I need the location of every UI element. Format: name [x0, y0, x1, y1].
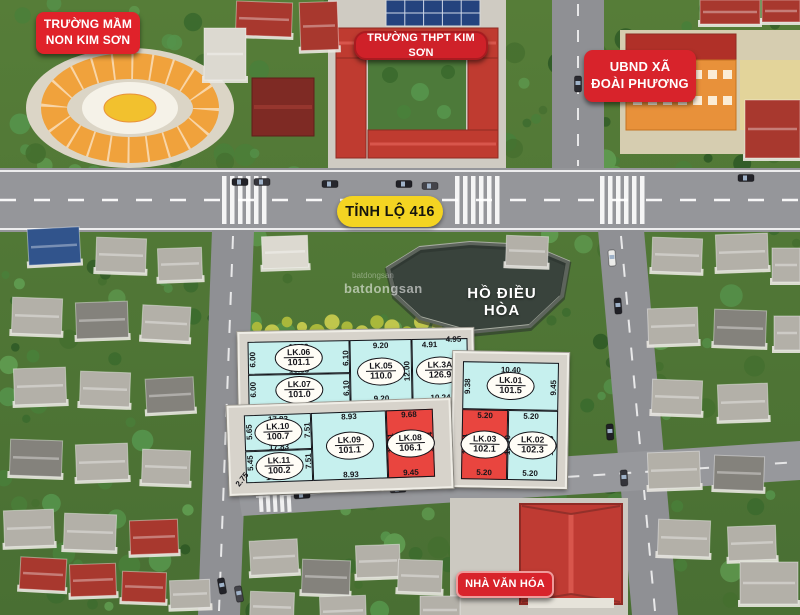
dimension-label: 7.51 — [303, 422, 313, 438]
ubnd-label-line2: ĐOÀI PHƯƠNG — [584, 76, 696, 93]
kindergarten-label-line1: TRƯỜNG MẦM — [36, 17, 140, 33]
plot-area: 100.2 — [268, 466, 291, 476]
plot-LK.07: LK.07101.0 — [248, 373, 351, 406]
ubnd-label: UBND XÃ ĐOÀI PHƯƠNG — [584, 50, 696, 102]
plot-area: 101.1 — [338, 446, 361, 456]
plot-area: 102.3 — [521, 445, 544, 455]
dimension-label: 8.93 — [341, 412, 357, 422]
dimension-label: 7.51 — [304, 453, 314, 469]
plot-area: 106.1 — [399, 443, 422, 453]
plot-area: 102.1 — [473, 445, 496, 455]
plot-area: 100.7 — [267, 432, 290, 442]
dimension-label: 9.68 — [401, 410, 417, 420]
kindergarten-label-line2: NON KIM SƠN — [36, 33, 140, 49]
plot-area: 101.1 — [288, 358, 311, 368]
dimension-label: 5.20 — [477, 411, 493, 420]
land-block-B: LK.01101.5LK.03102.1LK.02102.310.409.389… — [451, 351, 569, 489]
lake-label: HỒ ĐIỀU HÒA — [450, 285, 554, 319]
culture-house-label: NHÀ VĂN HÓA — [456, 571, 554, 598]
dimension-label: 6.00 — [248, 352, 257, 368]
culture-house-label-text: NHÀ VĂN HÓA — [458, 577, 552, 591]
road-label-text: TỈNH LỘ 416 — [345, 204, 435, 220]
kindergarten-label: TRƯỜNG MẦM NON KIM SƠN — [36, 12, 140, 54]
school-label: TRƯỜNG THPT KIM SƠN — [354, 31, 488, 60]
plot-LK.10: LK.10100.7 — [244, 413, 312, 451]
plot-badge-LK.11: LK.11100.2 — [255, 451, 304, 481]
plot-area: 101.5 — [499, 386, 522, 396]
dimension-label: 4.91 — [422, 340, 438, 349]
dimension-label: 6.10 — [341, 350, 350, 366]
plot-area: 110.0 — [370, 372, 392, 382]
plot-badge-LK.05: LK.05110.0 — [357, 357, 405, 386]
dimension-label: 5.20 — [476, 468, 492, 477]
dimension-label: 9.45 — [549, 380, 558, 396]
school-label-text: TRƯỜNG THPT KIM SƠN — [356, 31, 486, 60]
plot-badge-LK.06: LK.06101.1 — [275, 343, 323, 372]
dimension-label: 9.45 — [403, 468, 419, 478]
dimension-label: 8.93 — [343, 470, 359, 480]
dimension-label: 4.95 — [446, 335, 462, 344]
ubnd-label-line1: UBND XÃ — [584, 59, 696, 76]
dimension-label: 5.65 — [245, 424, 255, 440]
plot-LK.06: LK.06101.1 — [247, 340, 350, 375]
dimension-label: 6.00 — [249, 382, 258, 398]
dimension-label: 6.10 — [342, 380, 351, 396]
dimension-label: 5.20 — [522, 469, 538, 478]
plot-badge-LK.03: LK.03102.1 — [460, 430, 508, 459]
provincial-road-label: TỈNH LỘ 416 — [337, 196, 443, 227]
aerial-masterplan-image: LK.06101.1LK.07101.0LK.05110.0LK.3A126.9… — [0, 0, 800, 615]
plot-badge-LK.08: LK.08106.1 — [386, 429, 435, 459]
plot-badge-LK.07: LK.07101.0 — [275, 375, 323, 404]
plot-badge-LK.09: LK.09101.1 — [325, 431, 374, 461]
dimension-label: 9.38 — [463, 378, 472, 394]
watermark-small: batdongsan — [352, 271, 394, 280]
plot-area: 126.9 — [429, 371, 452, 381]
dimension-label: 9.20 — [373, 341, 389, 350]
dimension-label: 5.20 — [523, 412, 539, 421]
dimension-label: 5.45 — [246, 455, 256, 471]
plot-badge-LK.10: LK.10100.7 — [253, 417, 302, 447]
plot-badge-LK.02: LK.02102.3 — [508, 431, 556, 460]
land-block-C: LK.10100.7LK.11100.2LK.09101.1LK.08106.1… — [226, 398, 453, 496]
watermark: batdongsan — [344, 281, 423, 296]
plot-badge-LK.01: LK.01101.5 — [486, 372, 534, 401]
plot-area: 101.0 — [288, 390, 311, 400]
